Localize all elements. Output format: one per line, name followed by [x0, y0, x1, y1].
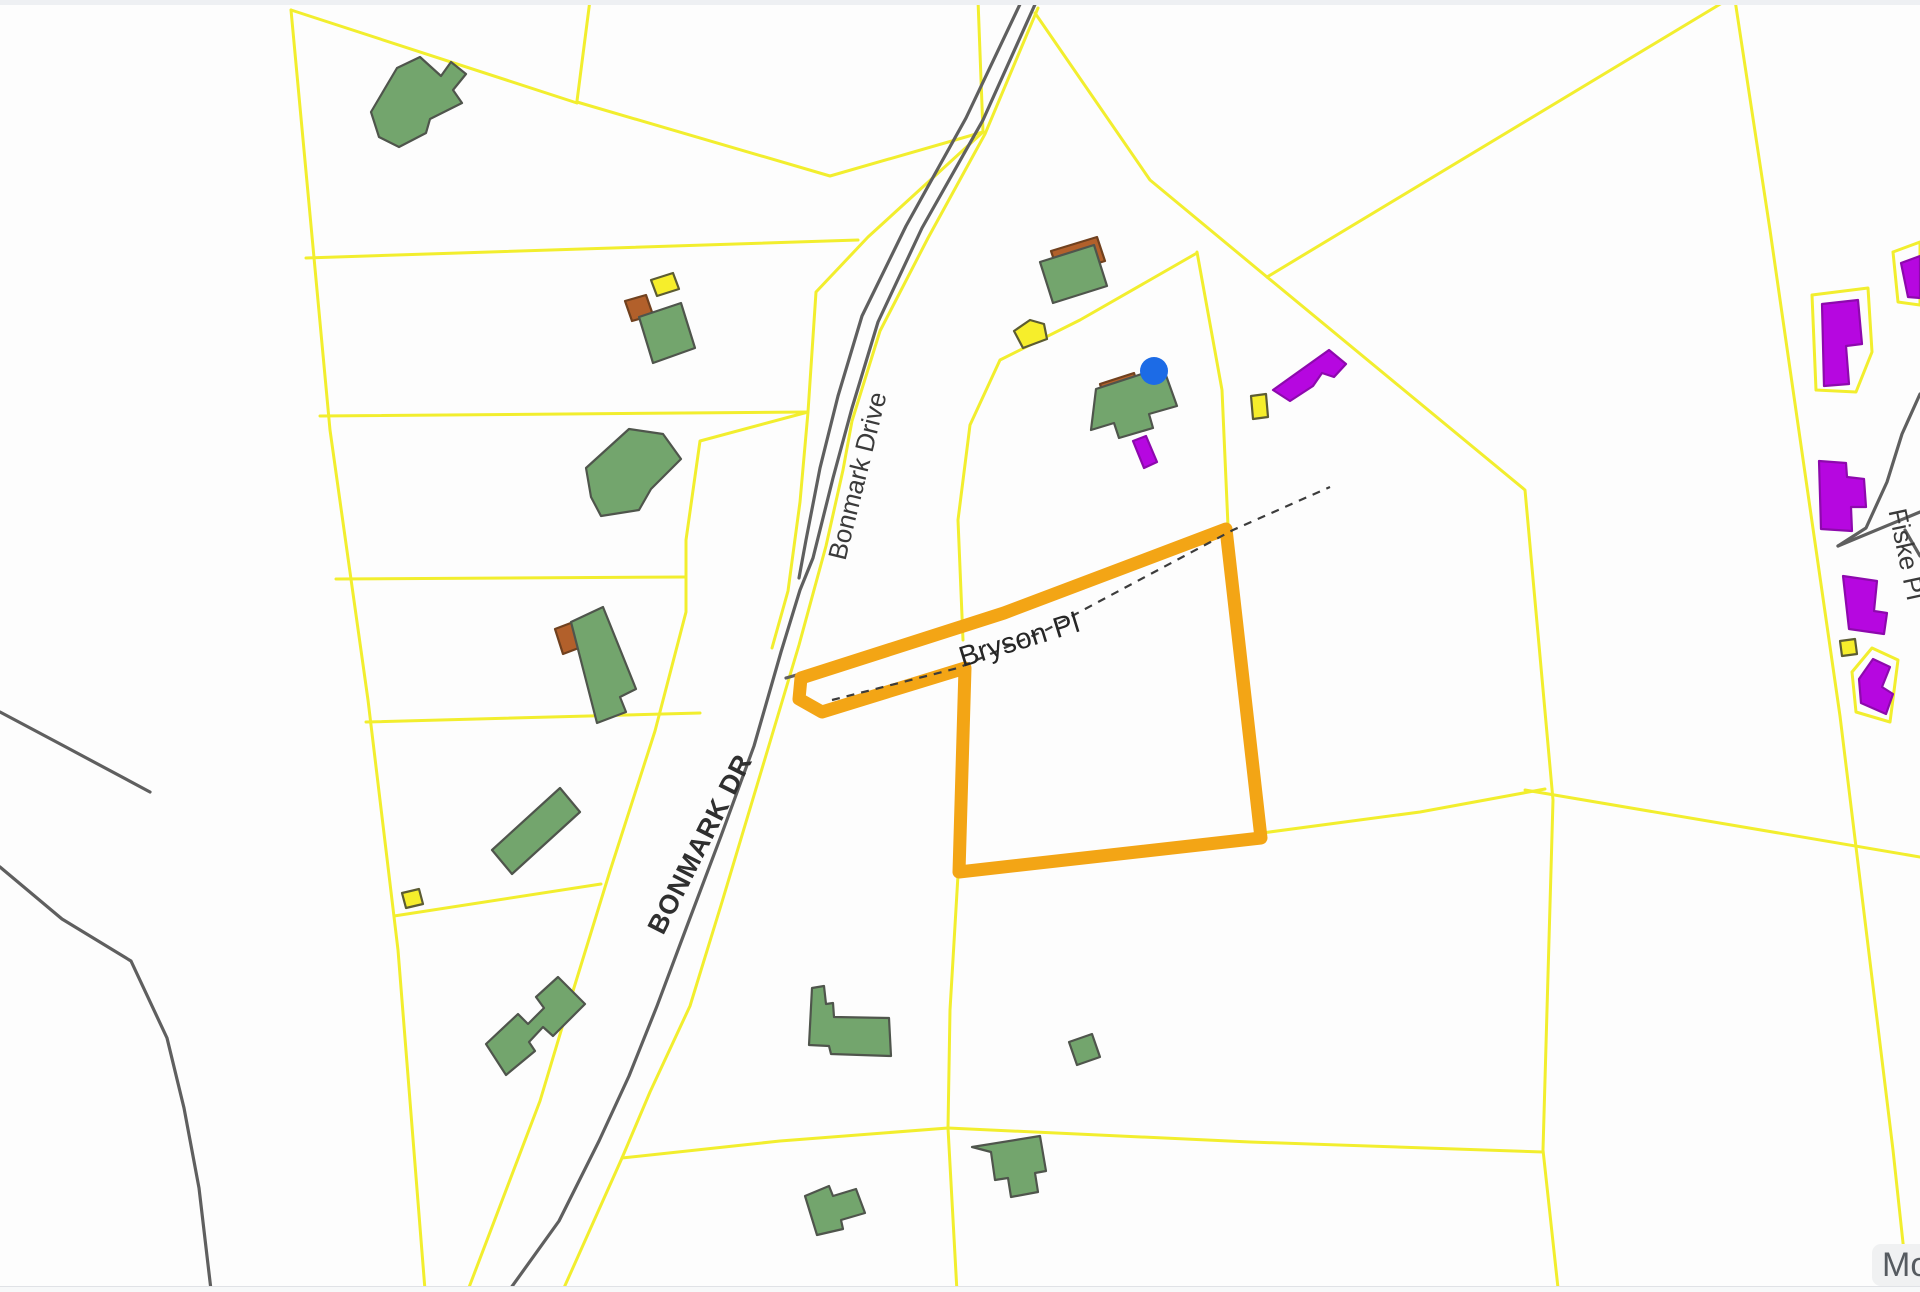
house-northwest[interactable]	[371, 57, 466, 147]
parcel-map[interactable]: Bonmark DriveBONMARK DRBryson PlFiske Pl	[0, 0, 1920, 1292]
more-chip[interactable]: Mo	[1872, 1244, 1920, 1286]
house-south-large[interactable]	[809, 986, 891, 1056]
road-edge-line	[0, 867, 211, 1290]
house-row4[interactable]	[492, 788, 580, 874]
shed-ne[interactable]	[1251, 394, 1268, 419]
parcel-boundary-line	[948, 875, 958, 1292]
outbuilding-purple-1[interactable]	[1133, 436, 1157, 468]
parcel-boundary-line	[1035, 13, 1267, 277]
house-row3[interactable]	[571, 607, 636, 723]
parcel-boundary-line	[366, 713, 700, 722]
parcel-boundary-line	[1525, 790, 1920, 857]
more-chip-label: Mo	[1882, 1244, 1920, 1286]
parcel-boundary-line	[1267, 0, 1727, 277]
house-south-t[interactable]	[972, 1136, 1046, 1197]
shed-row4[interactable]	[402, 889, 423, 908]
house-row5[interactable]	[486, 977, 585, 1075]
shed-south-green[interactable]	[1069, 1034, 1100, 1065]
shed-north-center[interactable]	[1014, 320, 1047, 348]
driveway-dashed-line	[832, 487, 1330, 700]
house-row2[interactable]	[586, 429, 681, 516]
map-bottom-edge	[0, 1286, 1920, 1292]
parcel-boundary-line	[577, 0, 590, 101]
shed-row1[interactable]	[651, 273, 679, 296]
building-fiske-1[interactable]	[1822, 300, 1862, 386]
road-edge-line	[799, 0, 1022, 578]
parcel-boundary-line	[622, 1128, 948, 1158]
parcel-boundary-line	[1197, 252, 1228, 526]
parcel-boundary-line	[772, 412, 808, 648]
parcel-boundary-line	[306, 240, 858, 258]
map-top-edge	[0, 0, 1920, 5]
building-fiske-2[interactable]	[1819, 461, 1866, 531]
parcel-boundary-line	[336, 577, 686, 579]
parcel-boundary-line	[320, 412, 808, 416]
road-edge-line	[0, 712, 150, 792]
house-north-center[interactable]	[1040, 245, 1107, 303]
map-canvas[interactable]: Bonmark DriveBONMARK DRBryson PlFiske Pl	[0, 0, 1920, 1292]
building-purple-ne[interactable]	[1273, 350, 1346, 401]
highlighted-parcel[interactable]	[799, 529, 1261, 872]
building-fiske-3[interactable]	[1843, 576, 1887, 634]
house-south-small[interactable]	[805, 1186, 865, 1235]
building-fiske-corner[interactable]	[1901, 256, 1920, 298]
parcel-boundary-line	[291, 10, 425, 1290]
parcel-boundary-line	[1735, 0, 1920, 1272]
shed-fiske[interactable]	[1840, 639, 1857, 656]
street-label-fiske-pl: Fiske Pl	[1883, 506, 1920, 603]
parcel-boundary-line	[394, 884, 601, 916]
parcel-boundary-line	[1262, 789, 1545, 833]
parcel-boundary-line	[1267, 277, 1558, 1288]
building-fiske-4[interactable]	[1859, 659, 1893, 714]
pool-circle[interactable]	[1140, 357, 1168, 385]
parcel-boundary-line	[577, 102, 983, 176]
